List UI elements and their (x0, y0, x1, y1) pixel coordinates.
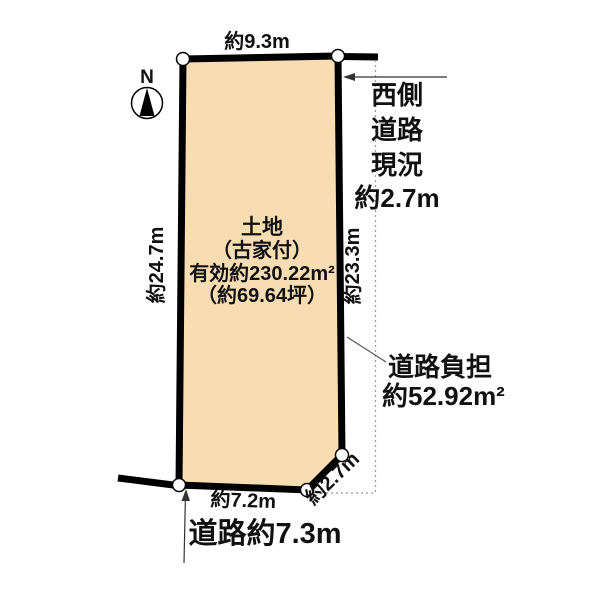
parcel-subtitle: （古家付） (212, 238, 312, 262)
parcel-title: 土地 (241, 215, 283, 239)
dimension-right: 約23.3m (340, 228, 364, 305)
corner-marker (173, 479, 186, 492)
corner-marker (177, 53, 190, 66)
parcel-area-tsubo: （約69.64坪） (197, 283, 327, 307)
west-road-label-4: 約2.7m (354, 183, 439, 213)
bottom-road-leader-line (184, 493, 186, 563)
dimension-bottom: 約7.2m (210, 487, 276, 513)
road-burden-leader-line (347, 337, 386, 362)
top-road-line (340, 57, 378, 58)
west-road-label-2: 道路 (371, 115, 424, 145)
west-road-arrowhead (343, 73, 355, 81)
road-burden-area: 約52.92m² (382, 381, 505, 411)
bottom-road-line (118, 478, 181, 486)
road-burden-label: 道路負担 (388, 352, 492, 382)
west-road-label-3: 現況 (371, 150, 423, 180)
land-plot-diagram: N 約9.3m 約24.7m 約23.3m 約7.2m 約2.7m 土地 （古家… (0, 0, 600, 600)
diagram-svg: N 約9.3m 約24.7m 約23.3m 約7.2m 約2.7m 土地 （古家… (0, 0, 600, 600)
dimension-left: 約24.7m (144, 227, 168, 304)
corner-marker (332, 50, 345, 63)
west-road-label-1: 西側 (371, 80, 423, 110)
dimension-top: 約9.3m (224, 29, 290, 53)
compass-north-label: N (140, 67, 154, 88)
parcel-area-sqm: 有効約230.22m² (189, 261, 335, 285)
bottom-road-label: 道路約7.3m (188, 516, 341, 550)
